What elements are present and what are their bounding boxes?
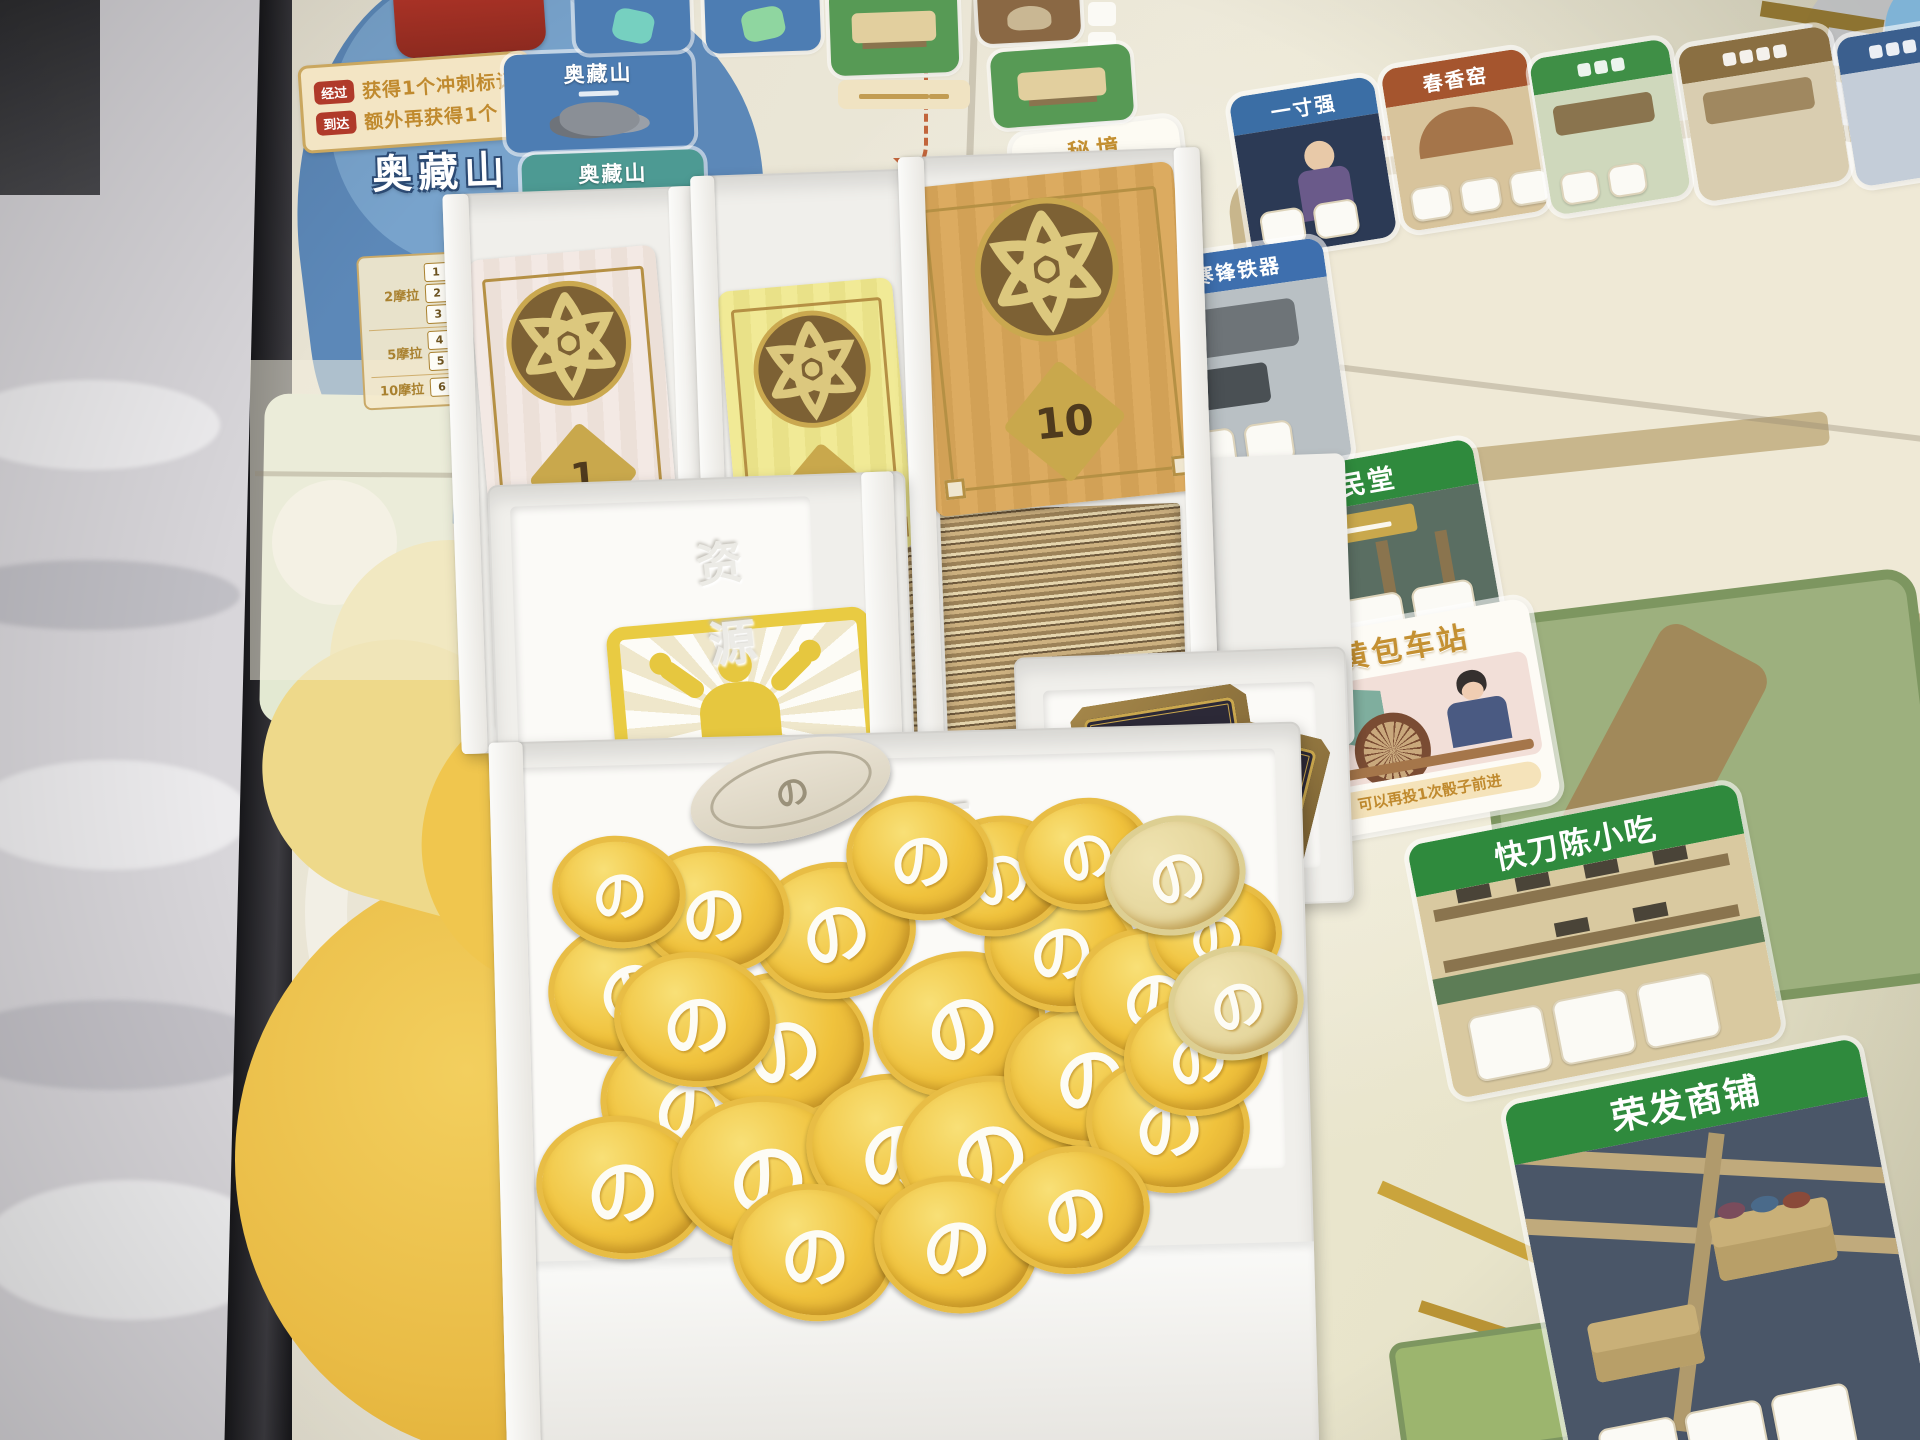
arrive-text: 额外再获得1个 xyxy=(363,98,499,134)
storefront-art xyxy=(1702,76,1816,125)
produce-art xyxy=(1716,1200,1747,1221)
tile-caption-band xyxy=(838,80,970,109)
mora-emblem-icon xyxy=(498,273,639,414)
headboard-corner xyxy=(0,0,100,195)
sheet-wrinkle xyxy=(0,560,240,630)
space-art xyxy=(1534,74,1691,216)
storefront-art xyxy=(1552,91,1655,136)
denomination-value: 10 xyxy=(1033,394,1096,449)
tile-top-blue-1 xyxy=(574,0,691,54)
tile-title: 奥藏山 xyxy=(504,55,693,92)
embossed-char-zi: 资 xyxy=(693,526,746,596)
mora-emblem-icon xyxy=(746,303,878,435)
tile-noticeboard xyxy=(990,43,1135,129)
payout-label: 2摩拉 xyxy=(367,285,420,307)
space-shop-tan xyxy=(1677,25,1852,203)
embossed-char-qu: 区 xyxy=(914,783,978,869)
crate-art xyxy=(1709,1196,1839,1282)
arrive-tag: 到达 xyxy=(316,110,358,136)
signboard-art xyxy=(851,11,936,44)
space-art xyxy=(1682,61,1851,203)
gem-art xyxy=(610,6,656,46)
payout-label: 5摩拉 xyxy=(370,342,423,364)
signboard-art xyxy=(1017,67,1107,101)
animal-art xyxy=(1007,5,1052,31)
embossed-char-yuan: 源 xyxy=(704,602,759,677)
gem-art xyxy=(739,4,787,44)
sheet-wrinkle xyxy=(0,1000,270,1090)
mountain-name-label: 奥藏山 xyxy=(371,138,511,201)
mora-symbol-icon: の xyxy=(765,761,815,819)
sprint-rule-shield xyxy=(393,0,547,59)
pass-tag: 经过 xyxy=(313,79,355,105)
mini-slot-chips xyxy=(1088,2,1116,26)
tray-floor xyxy=(515,748,1286,1188)
mora-emblem-icon xyxy=(964,187,1129,352)
post-art xyxy=(1672,1132,1724,1432)
space-yicunqiang: 一寸强 xyxy=(1228,76,1398,259)
tray-front-wall xyxy=(502,1241,1319,1440)
space-rongfa: 荣发商铺 xyxy=(1503,1038,1920,1440)
space-shop-green xyxy=(1529,38,1692,216)
sheet-wrinkle xyxy=(0,760,250,870)
build-slots xyxy=(1559,161,1649,206)
iron-ore-art xyxy=(559,101,640,138)
coin-tray xyxy=(488,721,1319,1440)
tile-top-blue-2 xyxy=(704,0,822,54)
sheet-wrinkle xyxy=(0,380,220,470)
space-art xyxy=(1234,113,1398,258)
space-chunxiangyao: 春香窑 xyxy=(1380,48,1550,233)
tile-aocang-ore: 奥藏山 xyxy=(503,49,694,154)
mora-card-10: 10 xyxy=(902,161,1207,518)
kiln-art xyxy=(1414,101,1514,159)
payout-label: 10摩拉 xyxy=(372,378,425,400)
tile-top-green xyxy=(829,0,960,76)
board-game-photo-scene: 经过 获得1个冲刺标记 到达 额外再获得1个 奥藏山 2摩拉 1 2 3 5摩拉… xyxy=(0,0,1920,1440)
build-slots xyxy=(1597,1382,1860,1440)
tile-top-brown xyxy=(977,0,1082,45)
driver-body-art xyxy=(1446,694,1513,748)
space-art xyxy=(1386,85,1550,232)
